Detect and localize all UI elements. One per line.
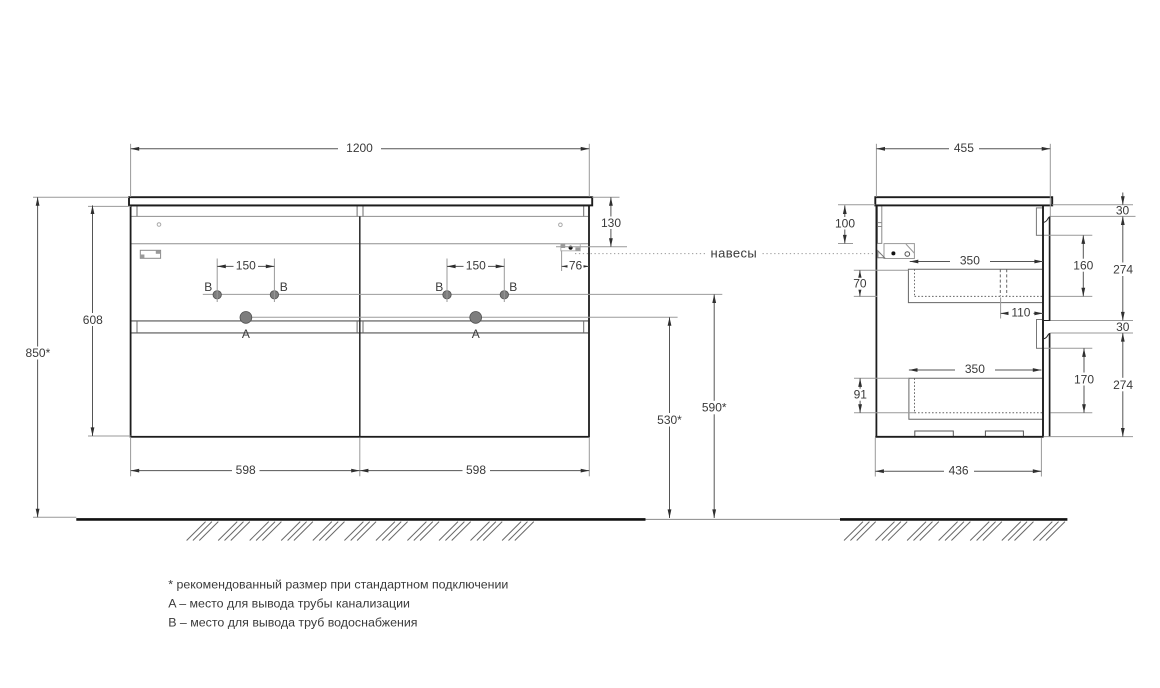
svg-text:170: 170 <box>1074 373 1094 387</box>
svg-text:100: 100 <box>835 216 855 230</box>
svg-text:436: 436 <box>949 463 969 477</box>
svg-text:608: 608 <box>83 313 103 327</box>
svg-text:274: 274 <box>1113 263 1133 277</box>
svg-text:B: B <box>204 280 212 294</box>
svg-text:навесы: навесы <box>711 245 758 260</box>
svg-text:598: 598 <box>466 463 486 477</box>
svg-text:110: 110 <box>1011 305 1030 319</box>
svg-text:70: 70 <box>853 277 867 291</box>
svg-text:150: 150 <box>466 258 486 272</box>
svg-text:A: A <box>242 327 250 341</box>
svg-text:76: 76 <box>569 259 583 273</box>
svg-text:1200: 1200 <box>346 141 373 155</box>
svg-text:130: 130 <box>601 216 621 230</box>
svg-text:91: 91 <box>854 388 868 402</box>
svg-text:A – место для вывода трубы кан: A – место для вывода трубы канализации <box>168 596 410 610</box>
svg-text:350: 350 <box>960 254 980 268</box>
svg-text:350: 350 <box>965 362 985 376</box>
svg-text:B – место для вывода труб водо: B – место для вывода труб водоснабжения <box>168 615 417 629</box>
svg-text:B: B <box>280 280 288 294</box>
svg-text:274: 274 <box>1113 378 1133 392</box>
svg-text:598: 598 <box>236 463 256 477</box>
svg-text:850*: 850* <box>26 346 51 360</box>
svg-text:B: B <box>509 280 517 294</box>
svg-text:A: A <box>472 327 480 341</box>
svg-text:30: 30 <box>1116 320 1130 334</box>
svg-text:* рекомендованный размер при с: * рекомендованный размер при стандартном… <box>168 577 508 591</box>
svg-text:530*: 530* <box>657 413 682 427</box>
svg-text:160: 160 <box>1073 259 1093 273</box>
svg-text:150: 150 <box>236 258 256 272</box>
svg-text:590*: 590* <box>702 401 727 415</box>
svg-text:B: B <box>435 280 443 294</box>
svg-text:455: 455 <box>954 141 974 155</box>
svg-text:30: 30 <box>1116 203 1130 217</box>
